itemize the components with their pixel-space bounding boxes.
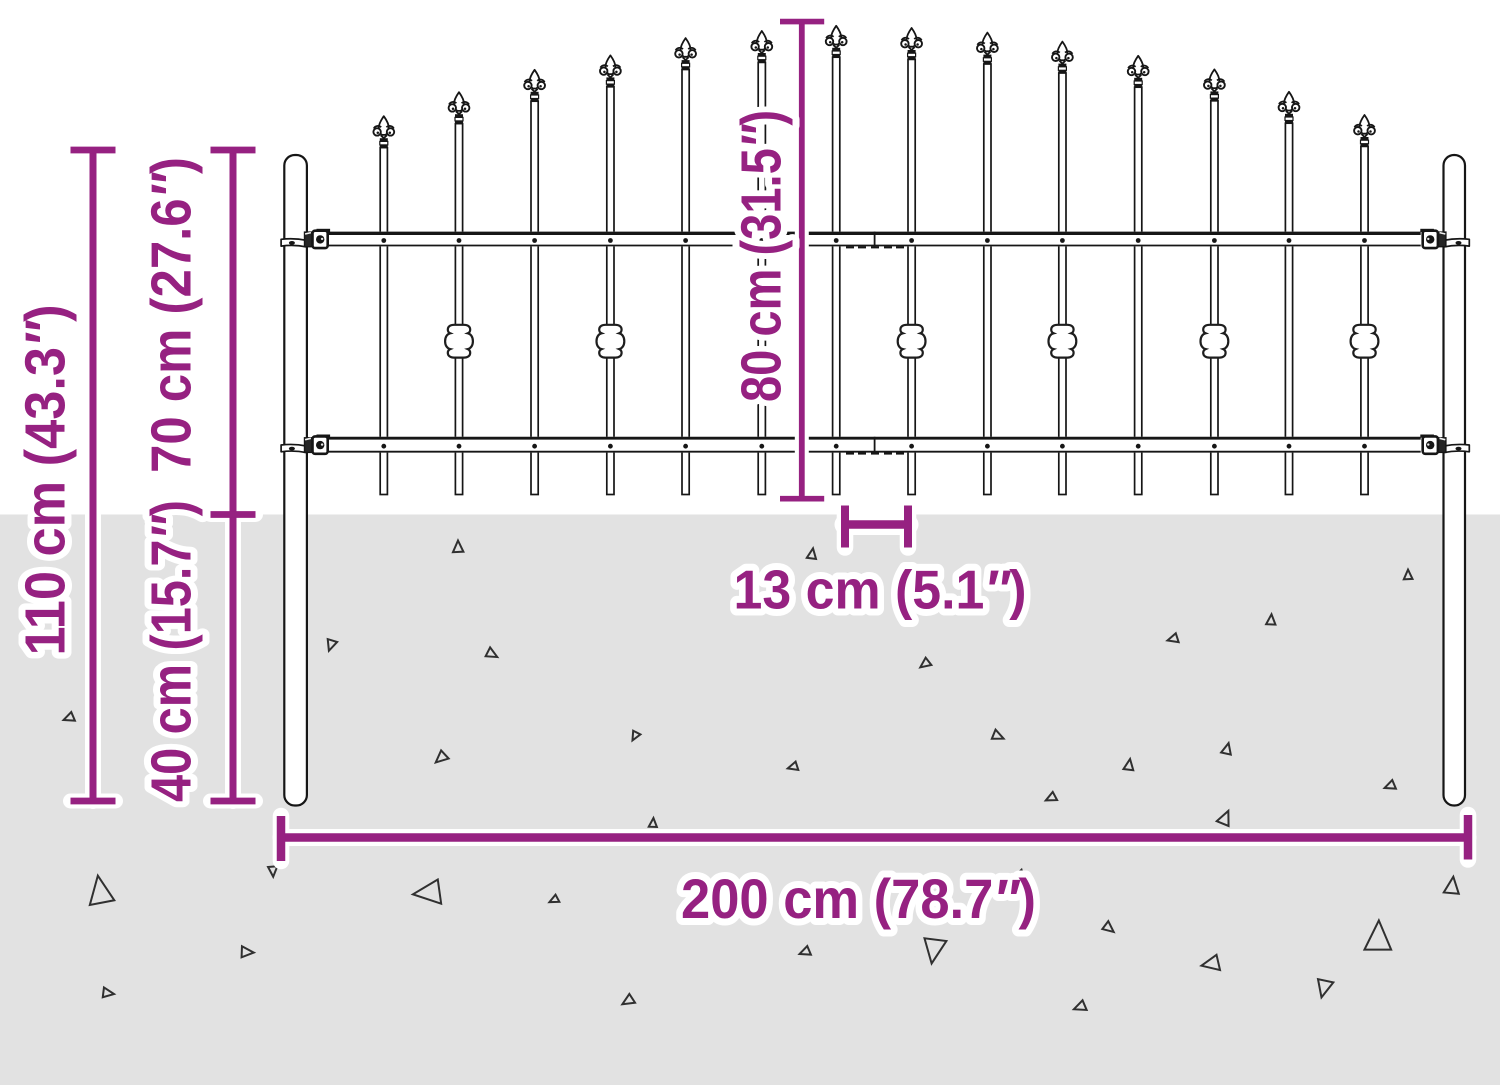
svg-text:110 cm (43.3″): 110 cm (43.3″)	[14, 305, 78, 656]
svg-text:200 cm (78.7″): 200 cm (78.7″)	[681, 867, 1036, 930]
svg-text:70 cm (27.6″): 70 cm (27.6″)	[140, 157, 204, 473]
svg-text:40 cm (15.7″): 40 cm (15.7″)	[140, 500, 204, 802]
svg-text:80 cm (31.5″): 80 cm (31.5″)	[730, 110, 794, 402]
svg-text:13 cm (5.1″): 13 cm (5.1″)	[734, 559, 1027, 621]
